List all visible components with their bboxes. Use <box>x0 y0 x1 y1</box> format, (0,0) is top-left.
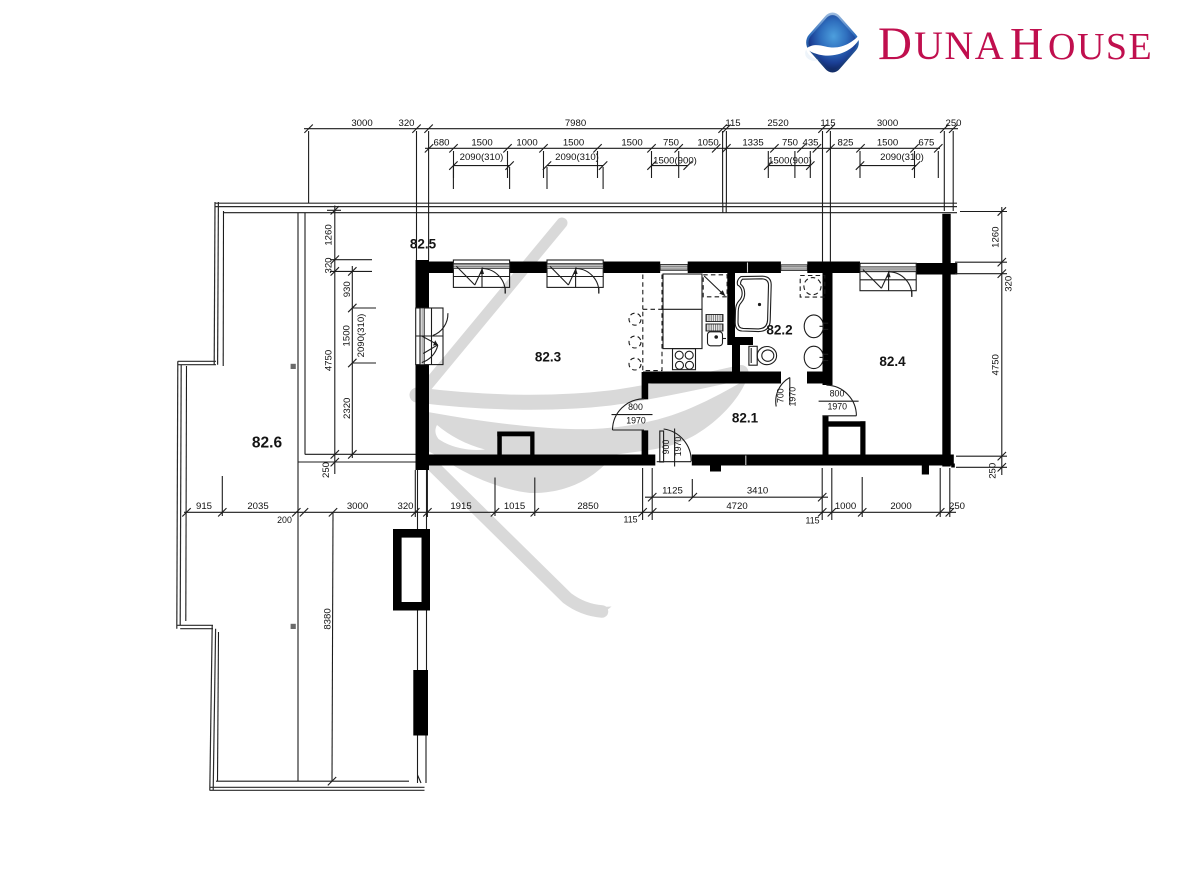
svg-text:1970: 1970 <box>673 437 683 457</box>
svg-text:UNA: UNA <box>914 23 1005 68</box>
svg-text:800: 800 <box>830 389 845 399</box>
svg-text:8380: 8380 <box>323 608 334 629</box>
svg-text:82.2: 82.2 <box>766 323 792 338</box>
svg-text:680: 680 <box>433 138 449 149</box>
svg-text:1260: 1260 <box>990 227 1001 248</box>
svg-text:1500: 1500 <box>621 138 642 149</box>
svg-text:82.4: 82.4 <box>879 354 906 369</box>
svg-text:2090(310): 2090(310) <box>460 152 504 163</box>
svg-text:115: 115 <box>725 118 740 129</box>
svg-text:1125: 1125 <box>662 485 683 496</box>
svg-text:825: 825 <box>837 138 853 149</box>
svg-text:1335: 1335 <box>742 138 763 149</box>
svg-text:1000: 1000 <box>835 501 856 512</box>
svg-text:1915: 1915 <box>450 501 471 512</box>
svg-text:1000: 1000 <box>516 138 537 149</box>
svg-text:2320: 2320 <box>342 398 353 419</box>
svg-text:1500(900): 1500(900) <box>653 155 697 166</box>
svg-text:1500: 1500 <box>563 138 584 149</box>
svg-text:4720: 4720 <box>726 501 747 512</box>
svg-text:1500: 1500 <box>877 138 898 149</box>
svg-text:1500(900): 1500(900) <box>768 155 812 166</box>
svg-text:800: 800 <box>628 402 643 412</box>
svg-text:3000: 3000 <box>877 118 898 129</box>
svg-text:3000: 3000 <box>351 118 372 129</box>
svg-text:2850: 2850 <box>577 501 598 512</box>
svg-text:675: 675 <box>918 138 934 149</box>
svg-text:320: 320 <box>397 501 413 512</box>
svg-text:1050: 1050 <box>697 138 718 149</box>
svg-text:115: 115 <box>820 118 835 129</box>
svg-text:2090(310): 2090(310) <box>880 152 924 163</box>
svg-text:3410: 3410 <box>747 485 768 496</box>
svg-text:900: 900 <box>661 440 671 455</box>
svg-text:250: 250 <box>988 463 999 479</box>
svg-text:250: 250 <box>321 462 332 478</box>
svg-text:1015: 1015 <box>504 501 525 512</box>
svg-text:OUSE: OUSE <box>1048 26 1153 68</box>
svg-text:1970: 1970 <box>828 402 848 412</box>
svg-text:200: 200 <box>277 515 292 525</box>
svg-text:2000: 2000 <box>890 501 911 512</box>
svg-text:700: 700 <box>775 388 785 403</box>
svg-text:250: 250 <box>945 118 961 129</box>
svg-text:2090(310): 2090(310) <box>356 314 367 358</box>
svg-text:115: 115 <box>805 516 819 526</box>
svg-text:930: 930 <box>342 281 353 297</box>
svg-text:82.1: 82.1 <box>732 411 759 426</box>
svg-text:435: 435 <box>802 138 818 149</box>
svg-text:3000: 3000 <box>347 501 368 512</box>
svg-text:1970: 1970 <box>787 387 797 407</box>
svg-text:4750: 4750 <box>991 354 1002 375</box>
svg-text:D: D <box>878 18 912 70</box>
svg-text:750: 750 <box>663 138 679 149</box>
svg-text:250: 250 <box>949 501 965 512</box>
svg-text:1500: 1500 <box>341 325 352 346</box>
svg-text:320: 320 <box>398 118 414 129</box>
svg-text:750: 750 <box>782 138 798 149</box>
svg-text:82.3: 82.3 <box>535 350 562 365</box>
svg-text:4750: 4750 <box>324 350 335 371</box>
svg-text:H: H <box>1010 18 1043 69</box>
svg-text:7980: 7980 <box>565 118 586 129</box>
svg-text:2090(310): 2090(310) <box>555 152 599 163</box>
svg-text:2035: 2035 <box>247 501 268 512</box>
svg-text:1260: 1260 <box>324 224 335 245</box>
svg-text:82.6: 82.6 <box>252 435 283 452</box>
svg-text:82.5: 82.5 <box>410 237 437 252</box>
svg-text:320: 320 <box>1004 276 1015 292</box>
svg-text:1500: 1500 <box>471 138 492 149</box>
svg-text:2520: 2520 <box>767 118 788 129</box>
svg-text:1970: 1970 <box>626 415 646 425</box>
svg-text:915: 915 <box>196 501 212 512</box>
svg-text:115: 115 <box>623 515 637 525</box>
